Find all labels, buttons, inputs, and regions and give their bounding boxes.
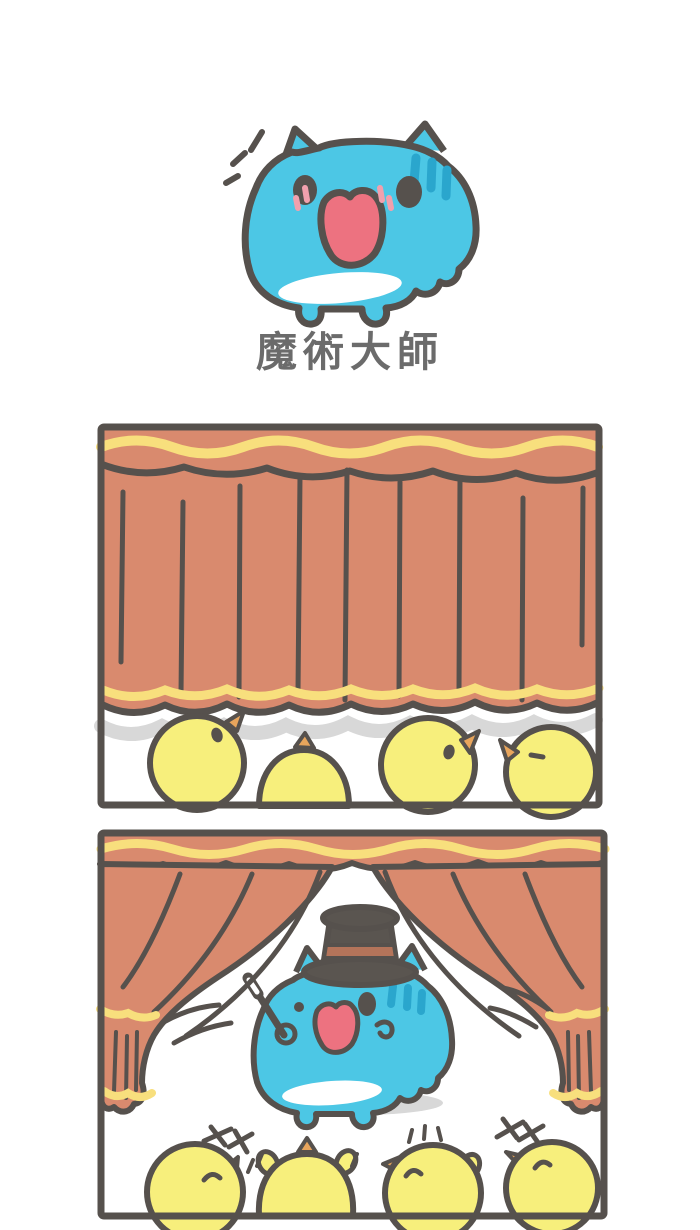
comic-page: 魔術大師 xyxy=(0,0,700,1230)
capoo-mascot xyxy=(226,124,476,324)
motion-marks xyxy=(409,1126,441,1142)
panel-magic-show xyxy=(100,833,605,1230)
cat-eye-right xyxy=(396,176,422,208)
cheering-chick-2 xyxy=(248,1138,360,1216)
comic-artwork xyxy=(0,0,700,1230)
cat-mouth xyxy=(315,1003,358,1053)
panel-closed-curtain xyxy=(101,427,599,817)
comic-title: 魔術大師 xyxy=(0,318,700,378)
excitement-marks xyxy=(497,1119,543,1144)
top-hat xyxy=(304,907,416,985)
audience-chick-3 xyxy=(381,718,479,812)
sparkle-lines xyxy=(226,132,262,183)
audience-chick-2 xyxy=(259,733,349,806)
cat-eye-right xyxy=(358,992,376,1016)
cat-mouth xyxy=(321,190,383,265)
cat-eye-left xyxy=(294,1002,304,1012)
audience-chick-1 xyxy=(150,711,244,810)
